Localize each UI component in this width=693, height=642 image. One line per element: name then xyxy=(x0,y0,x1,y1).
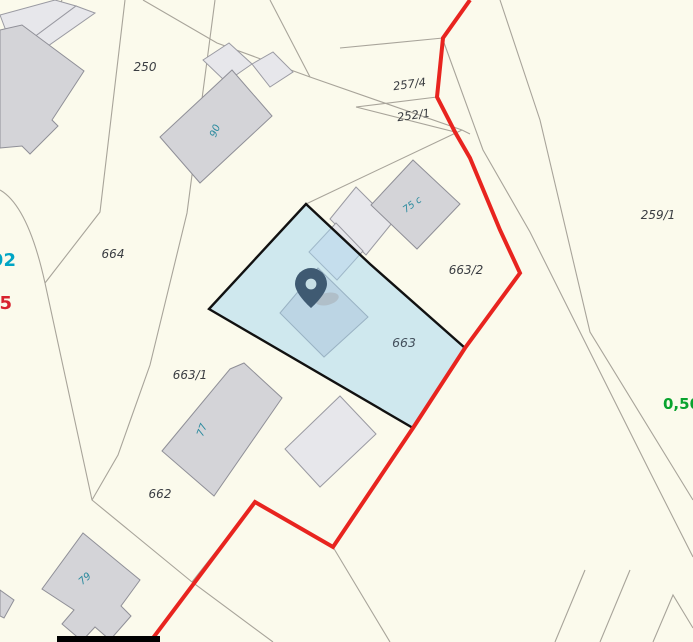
parcel-label-664: 664 xyxy=(102,247,125,261)
edge-label-0-50: 0,50 xyxy=(663,395,693,413)
edge-label-75: 75 xyxy=(0,293,12,314)
cadastral-map[interactable]: 250257/4252/1259/1664663/2663663/1662907… xyxy=(0,0,693,642)
edge-label-92: 92 xyxy=(0,250,16,271)
parcel-label-663-1: 663/1 xyxy=(173,368,208,382)
parcel-label-663: 663 xyxy=(392,335,416,350)
parcel-label-250: 250 xyxy=(134,60,157,74)
parcel-label-662: 662 xyxy=(149,487,172,501)
pin-hole xyxy=(306,279,317,290)
map-viewport[interactable]: 250257/4252/1259/1664663/2663663/1662907… xyxy=(0,0,693,642)
parcel-label-663-2: 663/2 xyxy=(449,263,484,277)
scale-bar xyxy=(57,636,160,642)
parcel-label-259-1: 259/1 xyxy=(641,208,676,222)
